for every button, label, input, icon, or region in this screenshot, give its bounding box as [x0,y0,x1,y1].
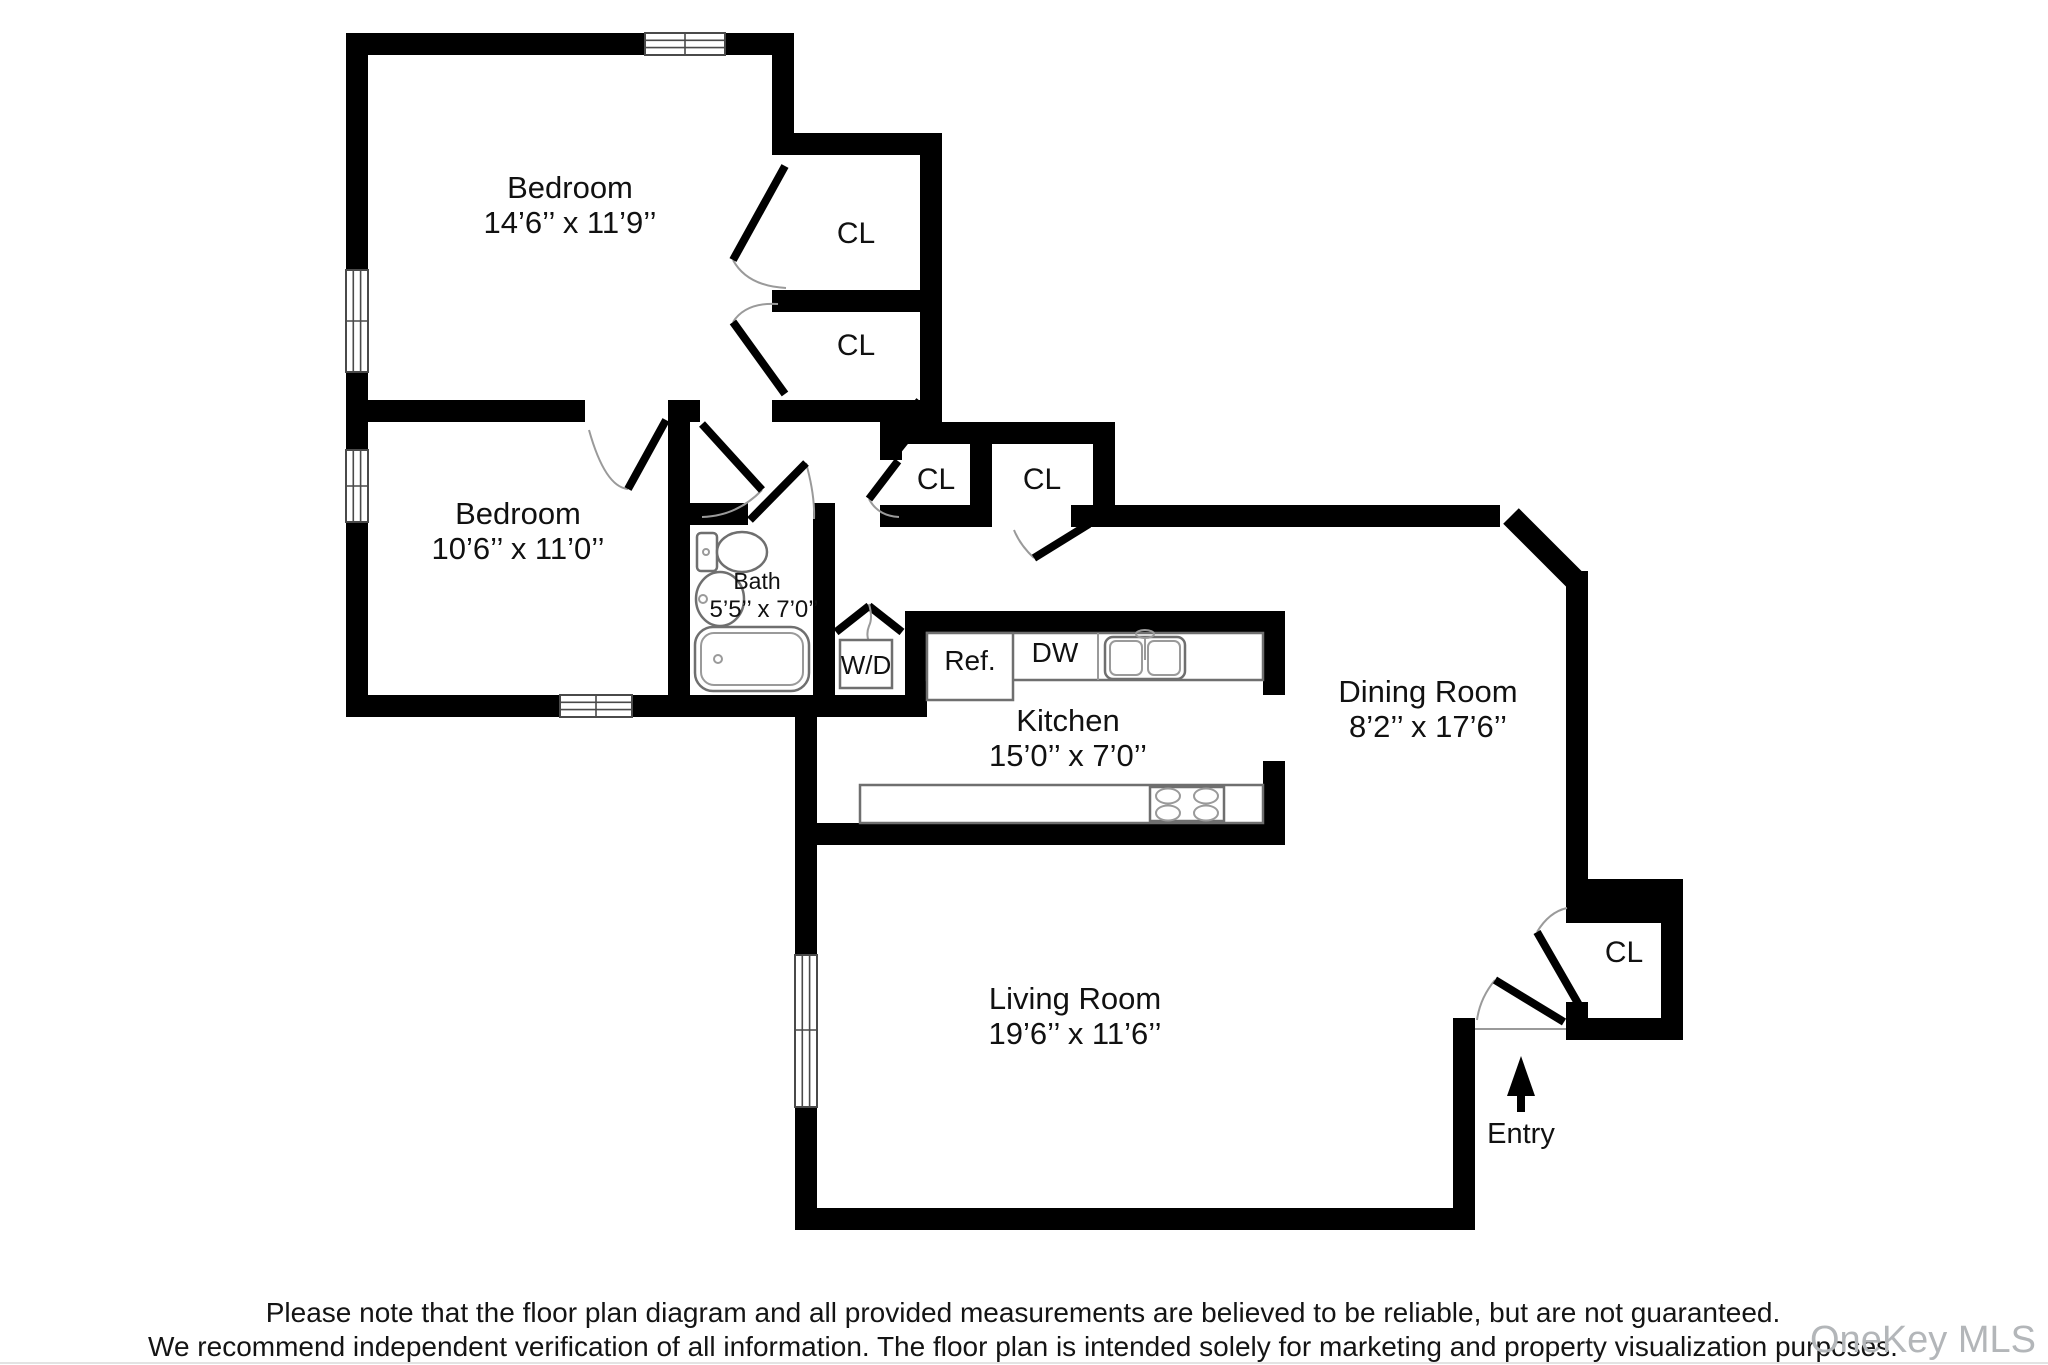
living-room-label: Living Room [989,981,1161,1016]
wall-segment [970,444,992,505]
dining-room-dims: 8’2’’ x 17’6’’ [1349,709,1507,744]
wall-segment [1566,571,1588,923]
door-swing-arc [806,463,814,519]
dishwasher-label: DW [1032,637,1079,668]
living-room-dims: 19’6’’ x 11’6’’ [989,1016,1162,1051]
door-leaf [628,420,666,489]
door-leaf [836,606,869,632]
wall-segment [1566,1018,1683,1040]
wall-segment [346,33,368,270]
door-leaf [869,461,898,499]
window [795,955,817,1107]
bathtub-outer [695,627,809,691]
disclaimer-line-2: We recommend independent verification of… [148,1331,1898,1362]
wall-segment [668,400,700,422]
closet-door [733,166,786,288]
dining-room-label: Dining Room [1338,674,1517,709]
wall-segment [346,400,585,422]
entry-arrow-head [1507,1056,1535,1096]
disclaimer-line-1: Please note that the floor plan diagram … [266,1297,1781,1328]
door-swing-arc [1477,980,1495,1020]
door-swing-arc [589,430,628,489]
bedroom-2-door [589,420,666,489]
wall-segment [668,422,690,695]
wall-segment [795,695,817,955]
washer-dryer-label: W/D [841,650,892,680]
wall-segment [346,695,560,717]
door-leaf [1034,524,1089,558]
toilet-bowl [717,532,767,572]
bath-label: Bath [733,568,780,594]
entry-door [1475,980,1566,1029]
door-leaf [733,322,785,394]
window [346,450,368,522]
wall-segment [1661,879,1683,1040]
entry-closet-door [1537,908,1583,1012]
bedroom-2-label: Bedroom [455,496,581,531]
wall-segment [920,133,942,422]
door-leaf [702,424,762,490]
floor-plan-diagram: Bedroom 14’6’’ x 11’9’’ Bedroom 10’6’’ x… [0,0,2048,1365]
closet-label-1: CL [837,217,875,250]
door-leaf [1495,980,1564,1022]
wall-segment [795,1208,1475,1230]
entry-label: Entry [1487,1118,1555,1150]
wall-segment [772,290,942,312]
kitchen-sink-icon [1105,630,1185,679]
window-frame [795,955,817,1107]
entry-arrow-icon [1507,1056,1535,1112]
window [560,695,632,717]
kitchen-label: Kitchen [1016,703,1119,738]
bathtub-icon [695,627,809,691]
window [346,270,368,372]
bedroom-2-dims: 10’6’’ x 11’0’’ [432,531,605,566]
wall-segment [1115,505,1500,527]
door-leaf [1537,932,1583,1012]
refrigerator-label: Ref. [944,645,995,676]
watermark: OneKey MLS [1810,1319,2036,1361]
door-leaf [869,606,902,632]
stove-outline [1150,787,1224,821]
door-leaf [733,166,785,260]
door-swing-arc [1014,530,1034,558]
wall-segment [905,611,1285,633]
room-labels: Bedroom 14’6’’ x 11’9’’ Bedroom 10’6’’ x… [432,170,1644,1150]
door-swing-arc [1537,908,1567,932]
door-swing-arc [733,304,778,322]
floor-plan-page: Bedroom 14’6’’ x 11’9’’ Bedroom 10’6’’ x… [0,0,2048,1365]
wall-segment [632,695,668,717]
bath-dims: 5’5’’ x 7’0’’ [710,596,819,623]
closet-label-5: CL [1605,936,1643,969]
wall-segment [1071,505,1115,527]
entry-arrow-stem [1517,1096,1525,1112]
closet-door [733,304,785,394]
footer: Please note that the floor plan diagram … [148,1297,1898,1362]
wall-segment [795,823,1285,845]
wall-segment [346,522,368,717]
toilet-tank [697,533,717,571]
hall-closet-door [1014,524,1089,558]
window [645,33,725,55]
wall-segment [346,33,645,55]
bedroom-1-label: Bedroom [507,170,633,205]
wall-segment [1453,1018,1475,1230]
closet-label-4: CL [1023,463,1061,496]
wall-segment [772,133,942,155]
kitchen-dims: 15’0’’ x 7’0’’ [989,738,1147,773]
closet-label-3: CL [917,463,955,496]
wall-segment [1263,633,1285,695]
toilet-icon [697,532,767,572]
closet-label-2: CL [837,329,875,362]
bedroom-1-dims: 14’6’’ x 11’9’’ [484,205,657,240]
door-swing-arc [733,260,786,288]
stove-icon [1150,787,1224,821]
